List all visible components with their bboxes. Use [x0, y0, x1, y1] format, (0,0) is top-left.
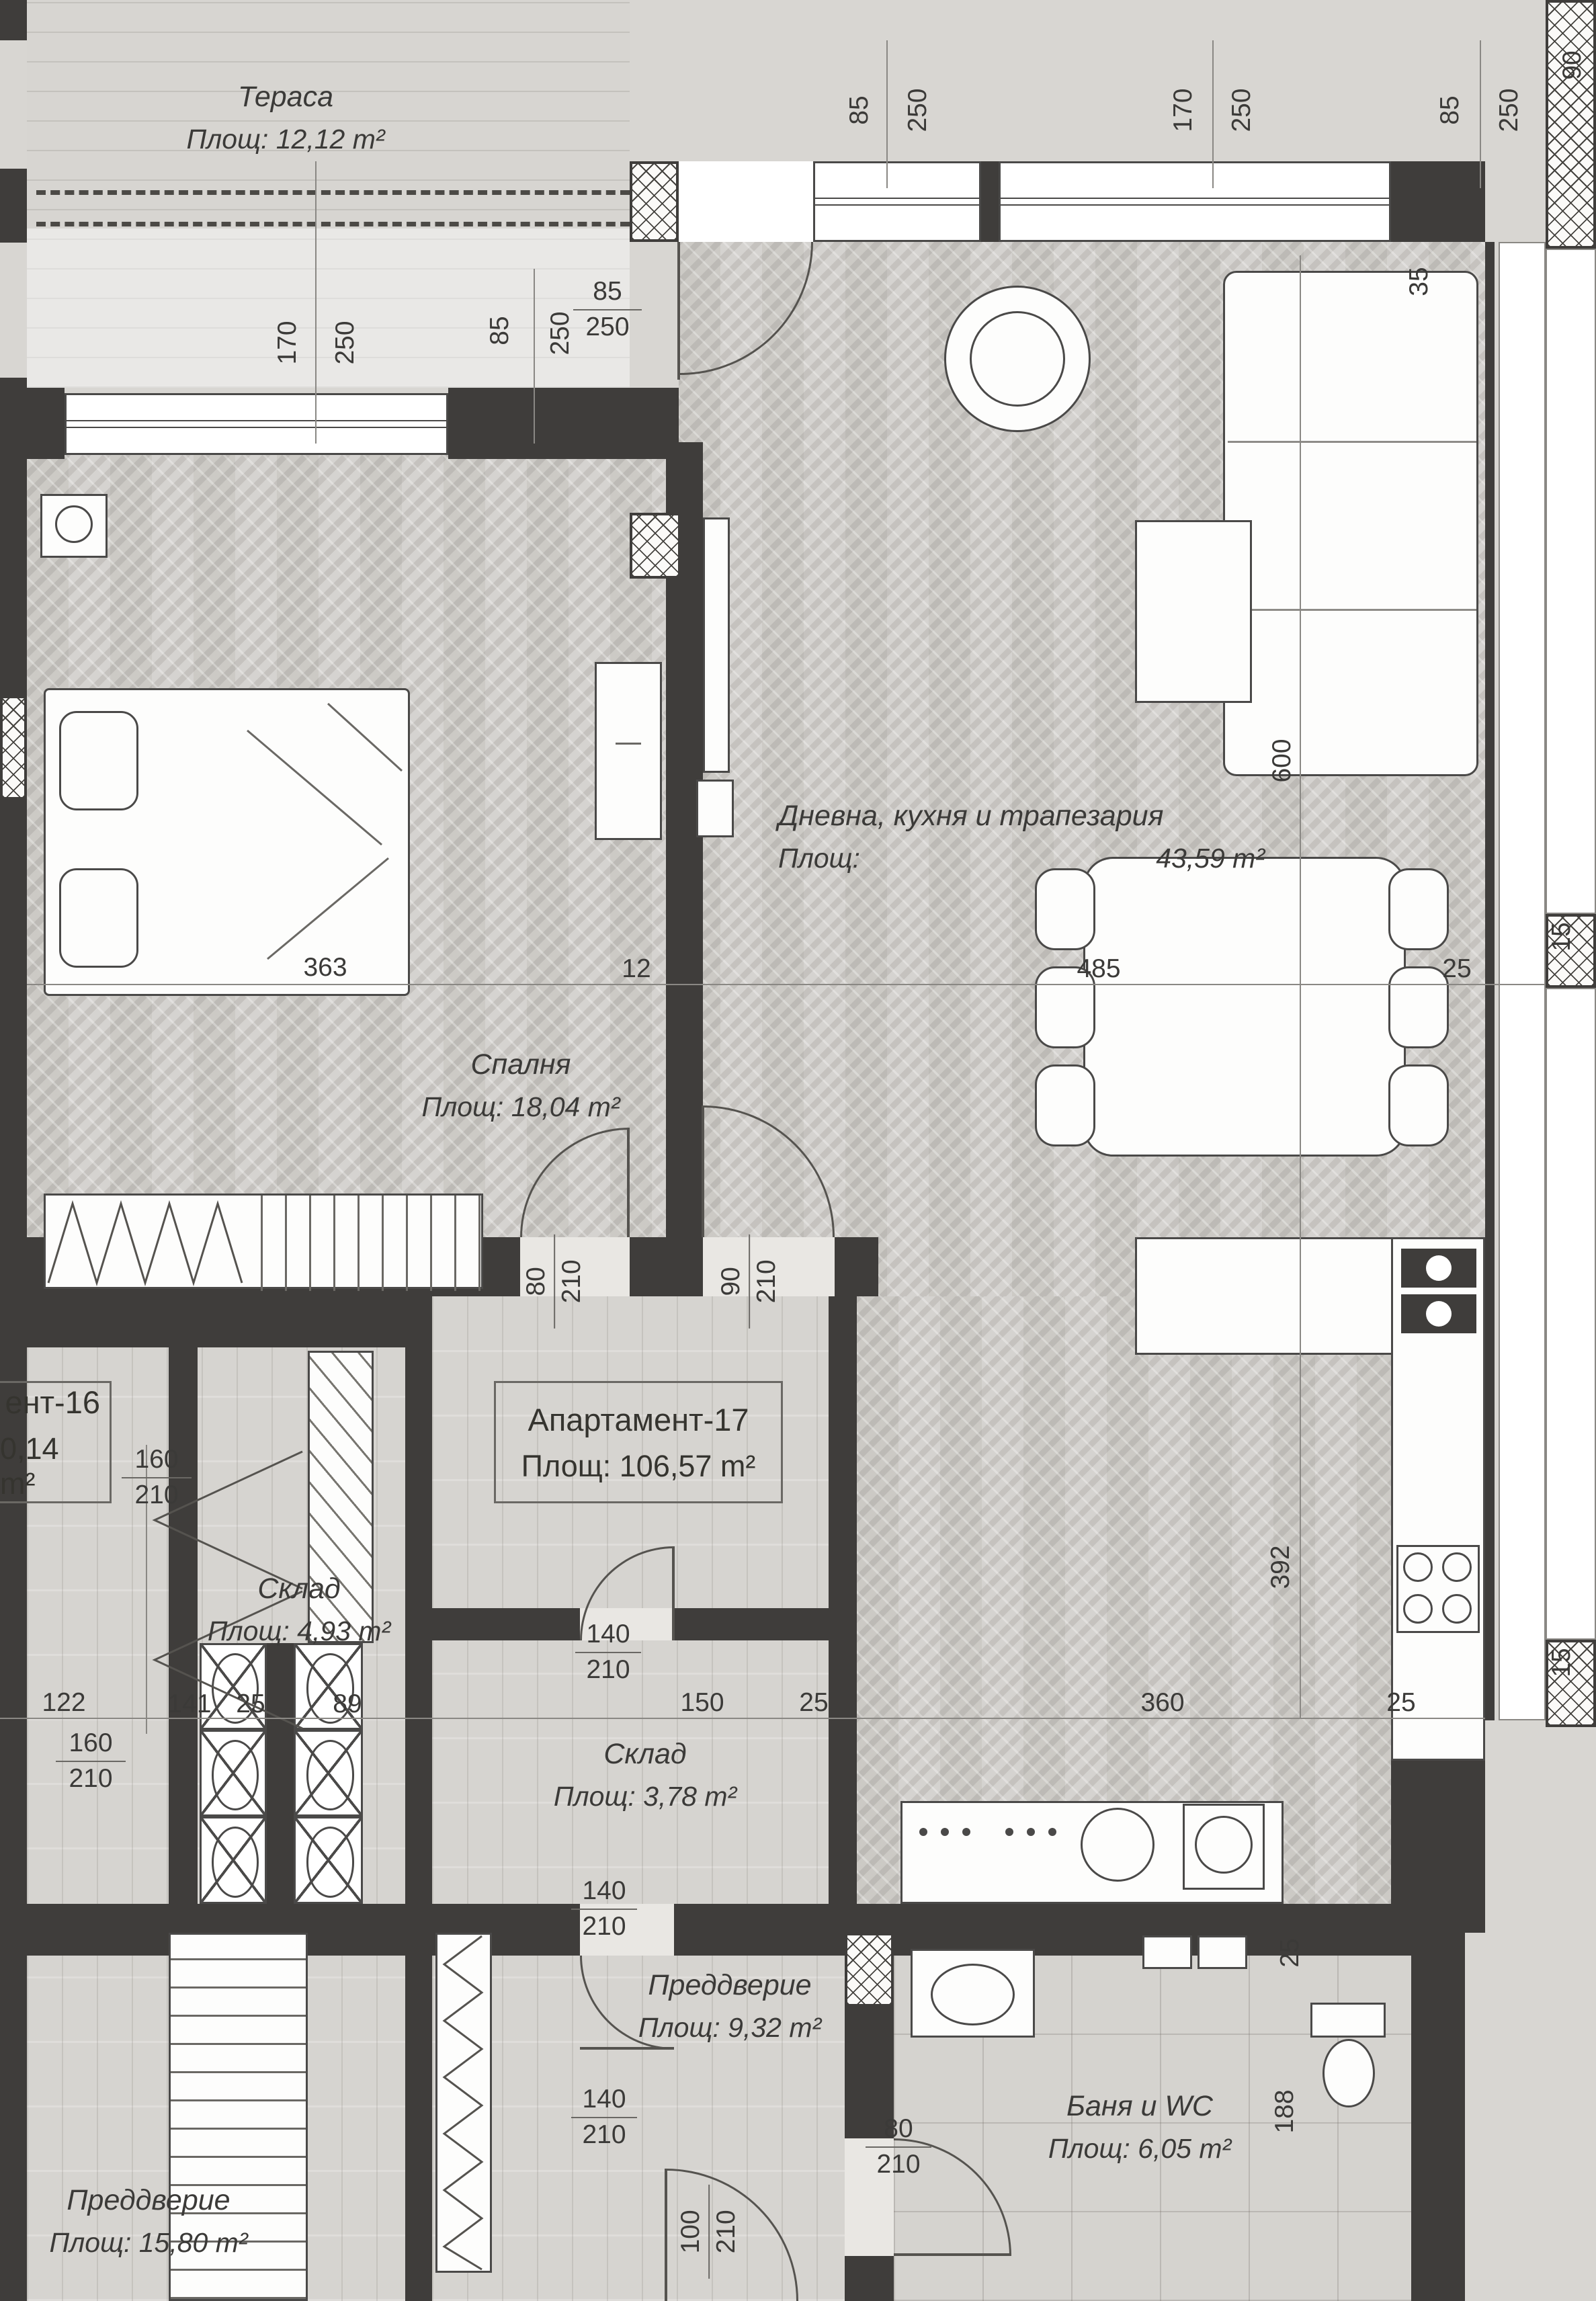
room-label-bathroom: Баня и WC Площ: 6,05 m²: [1027, 2085, 1253, 2169]
room-label-terrace: Тераса Площ: 12,12 m²: [155, 75, 417, 160]
wall: [1411, 1933, 1465, 2301]
column-hatch: [1546, 0, 1596, 249]
dim-b: 210: [582, 2120, 626, 2150]
fraction-line: [56, 1761, 126, 1762]
kitchen-sink-bowl: [1401, 1249, 1476, 1288]
stove-burner: [1442, 1594, 1472, 1624]
hall-closet: [435, 1933, 492, 2273]
installation-shaft: [294, 1816, 363, 1904]
apartment-name: ент-16: [5, 1384, 100, 1421]
dimension-line: [1300, 255, 1301, 1718]
room-area: Площ: 4,93 m²: [187, 1611, 411, 1652]
floor-plan: Тераса Площ: 12,12 m² Спалня Площ: 18,04…: [0, 0, 1596, 2301]
dim-360: 360: [1130, 1684, 1195, 1718]
dim-188: 188: [1249, 2093, 1321, 2130]
dim-150: 150: [669, 1684, 735, 1718]
tv-stand: [703, 517, 730, 773]
room-name: Дневна, кухня и трапезария: [778, 794, 1265, 838]
wall: [27, 1296, 405, 1347]
dim-bedroom-window-h: 250: [305, 319, 386, 367]
apartment-area: Площ: 106,57 m²: [521, 1449, 756, 1484]
fraction-line: [122, 1477, 192, 1478]
dining-table: [1083, 857, 1406, 1157]
dim-hall17-upper-door: 140 210: [571, 1876, 637, 1942]
round-sink: [1081, 1808, 1154, 1882]
drawer-knob: [1005, 1828, 1013, 1836]
dim-392: 392: [1245, 1548, 1317, 1586]
pillow: [59, 868, 138, 968]
round-armchair-seat: [970, 311, 1065, 407]
wall: [1391, 161, 1485, 242]
dim-25b: 25: [794, 1684, 834, 1718]
dim-a: 100: [676, 2210, 706, 2253]
wall: [674, 1904, 857, 1956]
dim-25-bath: 25: [1269, 1935, 1312, 1970]
dining-chair: [1388, 1064, 1449, 1146]
kitchen-sink-bowl: [1401, 1294, 1476, 1333]
dim-600: 600: [1246, 742, 1318, 780]
installation-shaft: [200, 1816, 267, 1904]
wall: [27, 388, 65, 459]
closet-zigzag: [437, 1935, 490, 2271]
drawer-knob: [962, 1828, 970, 1836]
room-area-row: Площ: 43,59 m²: [778, 838, 1265, 880]
terrace-dashed-line: [36, 222, 630, 226]
dim-15a: 15: [1542, 922, 1582, 952]
dim-89: 89: [328, 1685, 367, 1719]
dim-15b: 15: [1542, 1648, 1582, 1677]
coffee-table: [1135, 520, 1252, 703]
dim-living-width: 485: [1059, 948, 1138, 984]
dim-25a: 25: [231, 1685, 270, 1719]
living-window: [999, 161, 1391, 242]
dim-hall17-lower-door: 140 210: [571, 2085, 637, 2150]
column-hatch: [0, 696, 27, 800]
dim-living-door: 90 210: [716, 1235, 782, 1329]
dimension-line: [27, 984, 1546, 985]
wall: [674, 1608, 829, 1640]
bath-cabinet: [1142, 1935, 1192, 1969]
wardrobe-hangers: [46, 1196, 261, 1291]
wall: [0, 0, 27, 40]
terrace-dashed-line: [36, 190, 630, 195]
dim-a: 160: [69, 1728, 112, 1759]
dim-top-window2-h: 250: [1202, 86, 1282, 134]
room-label-living: Дневна, кухня и трапезария Площ: 43,59 m…: [778, 794, 1265, 879]
fraction-line: [571, 2117, 637, 2118]
fraction-line: [708, 2185, 710, 2279]
dim-storage2-door: 140 210: [575, 1620, 641, 1685]
wall: [432, 1608, 580, 1640]
stove-burner: [1403, 1594, 1433, 1624]
dim-entry-door: 85 250: [573, 277, 642, 343]
dim-main-entry-door: 100 210: [676, 2185, 742, 2279]
dishwasher-drum: [1195, 1816, 1253, 1874]
dim-b: 210: [586, 1655, 630, 1685]
dim-a: 80: [521, 1267, 552, 1296]
column-hatch: [630, 161, 679, 242]
dim-a: 160: [134, 1445, 178, 1475]
room-name: Преддверие: [26, 2179, 271, 2222]
dim-bath-door: 80 210: [866, 2114, 931, 2180]
fraction-line: [866, 2146, 931, 2148]
drawer-knob: [919, 1828, 927, 1836]
wall: [829, 1296, 857, 1904]
dim-living-wall: 25: [1435, 952, 1478, 984]
dim-b: 210: [752, 1259, 782, 1303]
room-area: Площ: 9,32 m²: [617, 2007, 843, 2049]
dim-top-window3-h: 250: [1469, 86, 1550, 134]
apartment16-label-box: ент-16 0,14 m²: [0, 1381, 112, 1503]
apartment-area: 0,14 m²: [0, 1431, 100, 1501]
nightstand-lamp: [55, 505, 93, 543]
sofa-cushion-line: [1228, 609, 1476, 611]
sofa: [1223, 271, 1478, 776]
dim-top-corner: 90: [1549, 46, 1596, 84]
dim-25c: 25: [1382, 1684, 1421, 1718]
room-area: Площ: 6,05 m²: [1027, 2128, 1253, 2170]
room-name: Спалня: [373, 1043, 669, 1087]
apartment-name: Апартамент-17: [528, 1401, 749, 1438]
dining-chair: [1035, 868, 1095, 950]
wall: [845, 2256, 894, 2301]
drawer-knob: [1027, 1828, 1035, 1836]
wall: [630, 1237, 703, 1296]
dim-b: 210: [876, 2150, 920, 2180]
room-area: Площ: 18,04 m²: [373, 1087, 669, 1128]
room-label-storage1: Склад Площ: 4,93 m²: [187, 1567, 411, 1652]
dim-122: 122: [30, 1684, 98, 1718]
wall: [405, 1933, 432, 2301]
installation-shaft: [294, 1730, 363, 1816]
dimension-line: [315, 161, 317, 444]
wall: [981, 161, 999, 242]
dim-141: 141: [157, 1685, 222, 1719]
dim-a: 140: [582, 1876, 626, 1907]
room-name: Склад: [530, 1732, 761, 1776]
column-hatch: [845, 1933, 894, 2007]
room-name: Склад: [187, 1567, 411, 1611]
room-label-hallway16: Преддверие Площ: 15,80 m²: [26, 2179, 271, 2263]
dim-bedroom-door: 80 210: [521, 1235, 587, 1329]
drawer-knob: [941, 1828, 949, 1836]
dim-a: 80: [884, 2114, 913, 2144]
bedroom-window: [65, 393, 448, 455]
dim-35: 35: [1394, 261, 1444, 302]
installation-shaft: [200, 1730, 267, 1816]
room-name: Баня и WC: [1027, 2085, 1253, 2128]
dimension-line: [0, 1718, 1485, 1719]
room-area: Площ: 15,80 m²: [26, 2222, 271, 2264]
room-name: Преддверие: [617, 1964, 843, 2007]
fraction-line: [554, 1235, 555, 1329]
stove-burner: [1403, 1552, 1433, 1582]
living-window: [813, 161, 981, 242]
dim-a: 90: [716, 1267, 747, 1296]
wardrobe: [44, 1194, 483, 1289]
room-name: Тераса: [155, 75, 417, 119]
drawer-knob: [1048, 1828, 1056, 1836]
right-wall-channel: [1546, 988, 1596, 1640]
dim-apt16-door-a: 160 210: [122, 1445, 192, 1511]
wall: [857, 1904, 1411, 1956]
wall: [1485, 242, 1495, 1720]
column-hatch: [630, 513, 681, 579]
dim-b: 210: [557, 1259, 587, 1303]
fraction-line: [573, 309, 642, 310]
room-area: Площ: 12,12 m²: [155, 119, 417, 161]
dim-bedroom-wall: 12: [616, 952, 657, 984]
wall: [0, 169, 27, 243]
apartment17-label-box: Апартамент-17 Площ: 106,57 m²: [494, 1381, 783, 1503]
dresser: [595, 662, 662, 840]
wall: [0, 378, 27, 2301]
side-table: [696, 780, 734, 837]
wall: [448, 388, 679, 459]
room-label-storage2: Склад Площ: 3,78 m²: [530, 1732, 761, 1817]
room-area-value: 43,59 m²: [1156, 838, 1265, 880]
dim-b: 210: [712, 2210, 742, 2253]
room-label-bedroom: Спалня Площ: 18,04 m²: [373, 1043, 669, 1128]
fraction-line: [575, 1652, 641, 1653]
dining-chair: [1035, 1064, 1095, 1146]
dim-bedroom-width: 363: [293, 949, 358, 982]
pillow: [59, 711, 138, 810]
dim-b: 210: [69, 1764, 112, 1794]
stove-burner: [1442, 1552, 1472, 1582]
dining-chair: [1388, 868, 1449, 950]
dim-b: 250: [585, 312, 629, 343]
door-opening: [679, 161, 813, 242]
wall: [1391, 1761, 1485, 1933]
room-label-hallway17: Преддверие Площ: 9,32 m²: [617, 1964, 843, 2048]
sofa-cushion-line: [1228, 441, 1476, 443]
kitchen-peninsula: [1135, 1237, 1398, 1355]
dresser-handle: [616, 743, 641, 745]
dim-top-window1-h: 250: [878, 86, 958, 134]
fraction-line: [571, 1909, 637, 1910]
wardrobe-shelves: [261, 1196, 485, 1291]
toilet-bowl: [1322, 2039, 1375, 2107]
fraction-line: [749, 1235, 750, 1329]
wall: [835, 1237, 878, 1296]
room-area-label: Площ:: [778, 838, 860, 880]
bath-sink-basin: [931, 1964, 1015, 2025]
dim-a: 140: [582, 2085, 626, 2115]
dim-b: 210: [134, 1480, 178, 1511]
right-wall-channel: [1499, 242, 1546, 1720]
dim-apt16-door-b: 160 210: [56, 1728, 126, 1794]
room-area: Площ: 3,78 m²: [530, 1776, 761, 1818]
toilet-tank: [1310, 2003, 1386, 2038]
dim-a: 85: [593, 277, 622, 307]
bath-cabinet: [1198, 1935, 1247, 1969]
dim-b: 210: [582, 1912, 626, 1942]
right-wall-channel: [1546, 249, 1596, 914]
dim-a: 140: [586, 1620, 630, 1650]
